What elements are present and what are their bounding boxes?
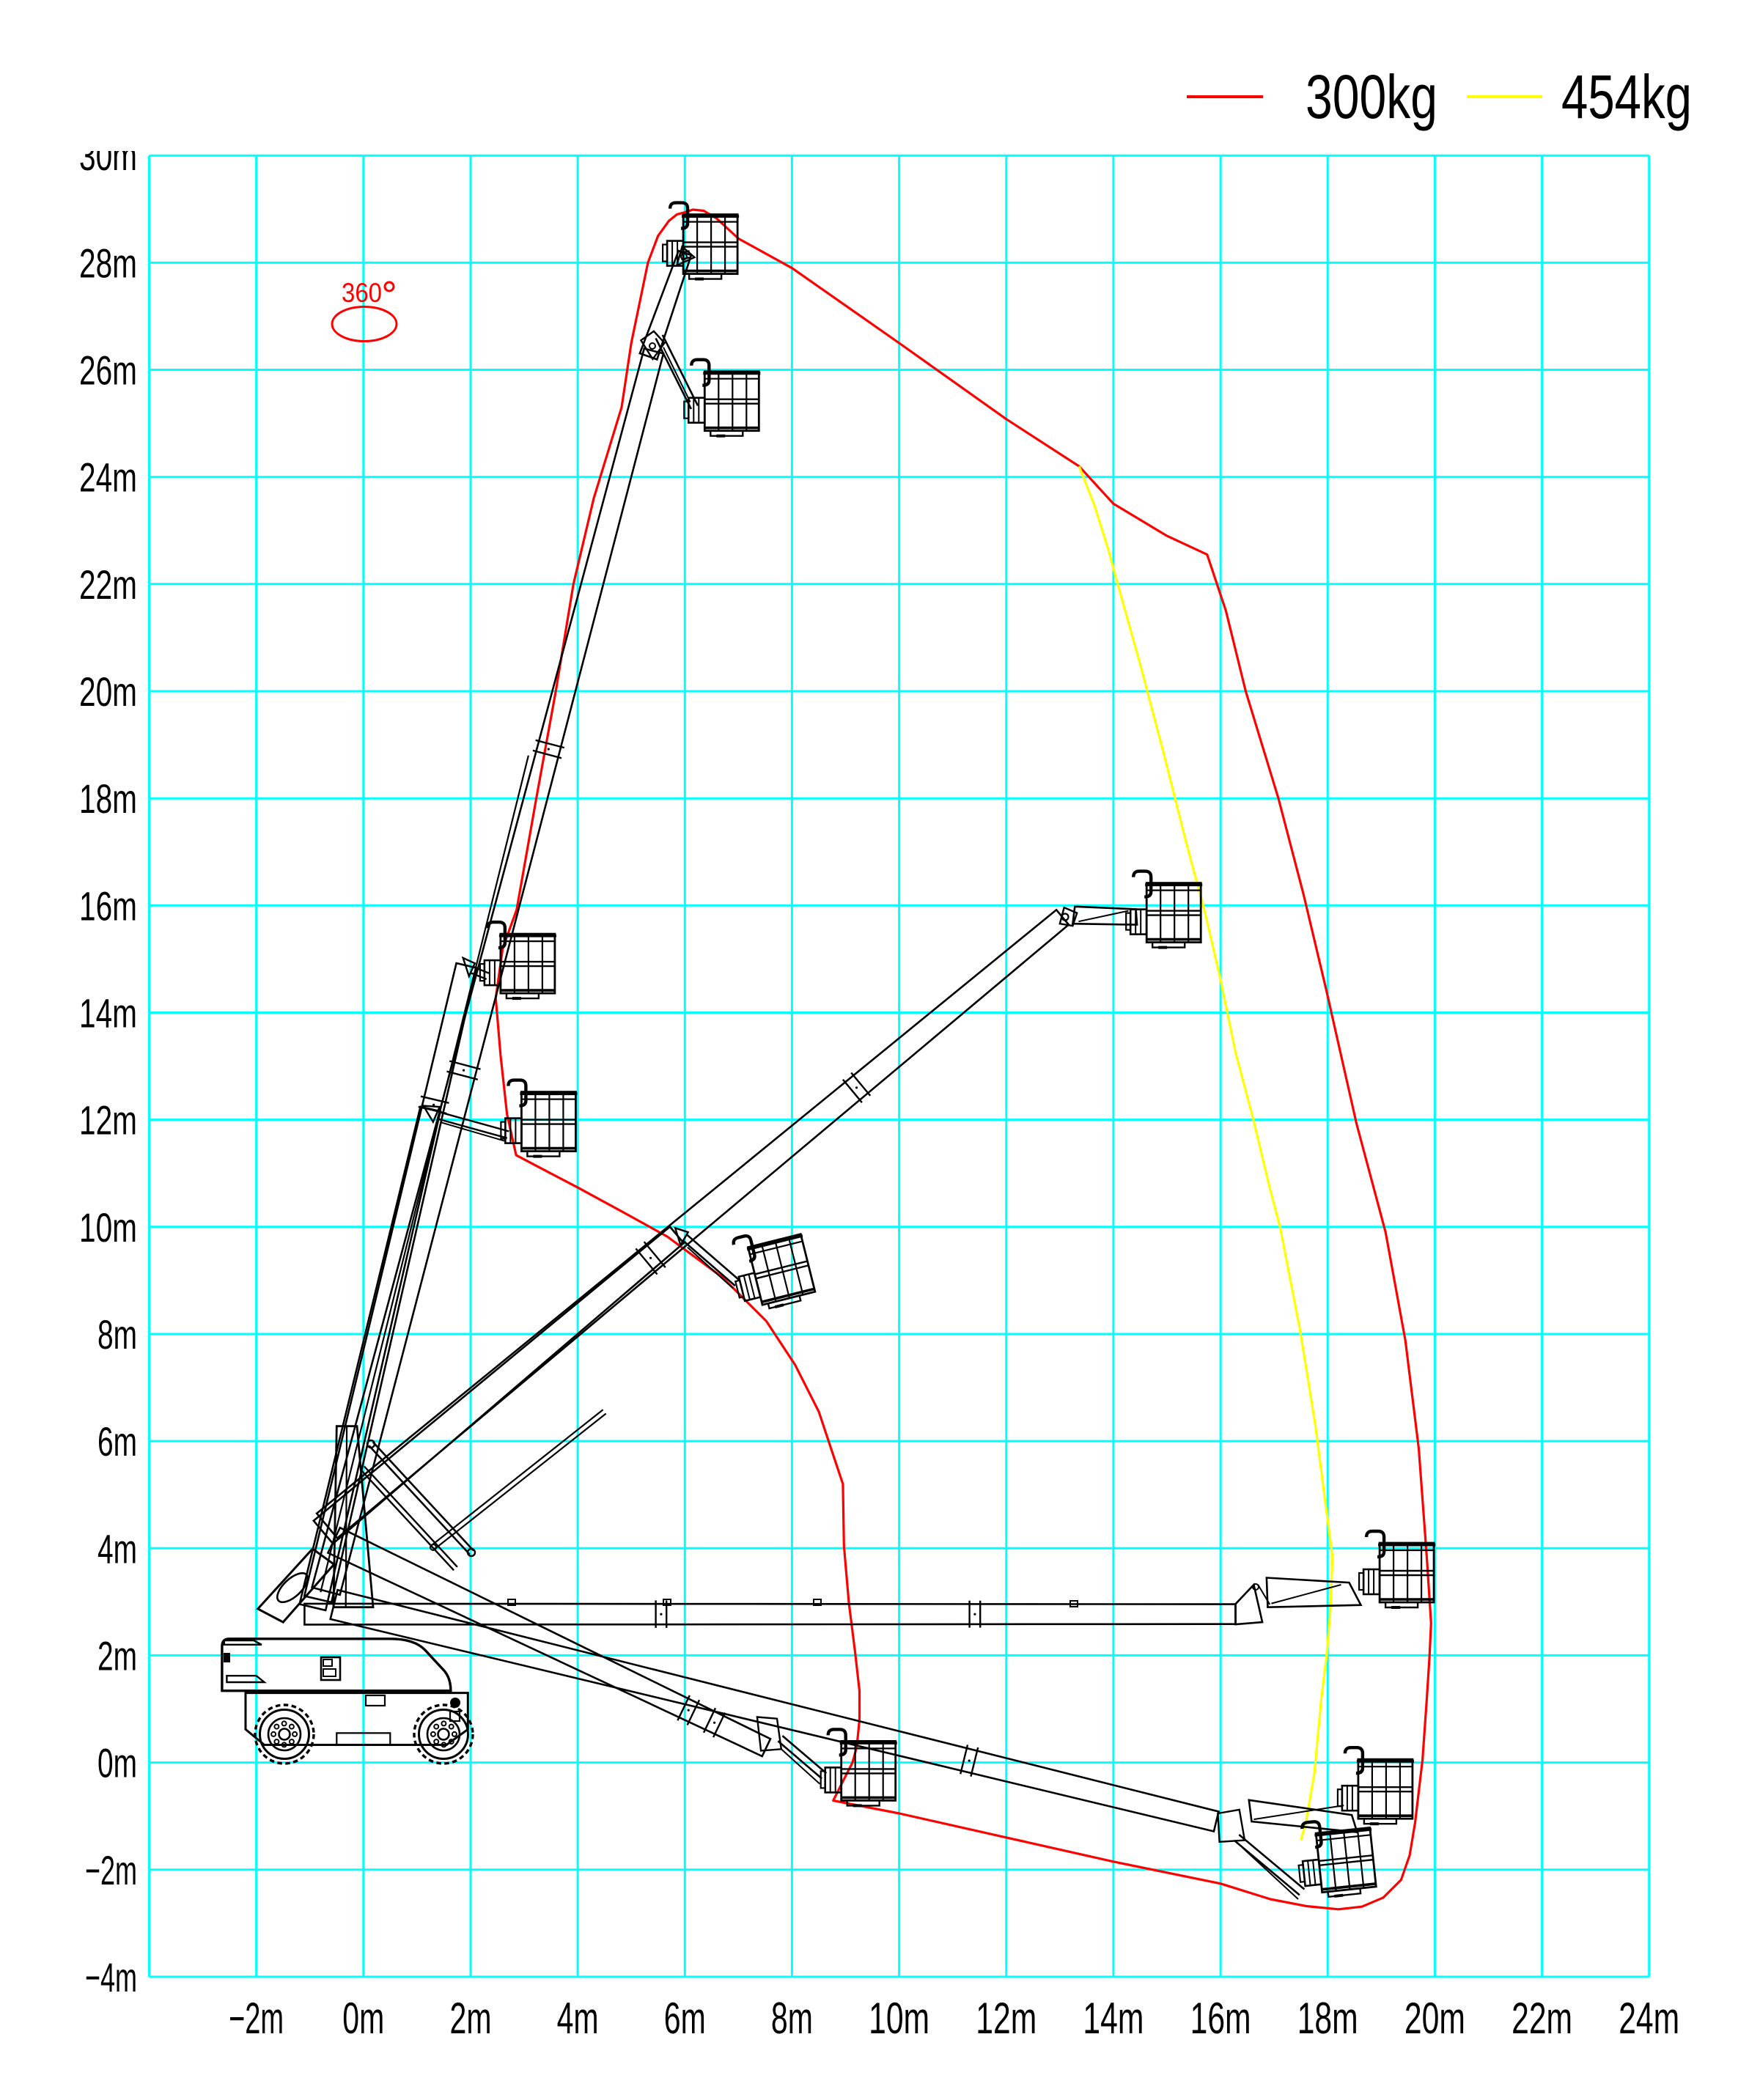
- svg-text:6m: 6m: [97, 1418, 137, 1465]
- svg-text:−2m: −2m: [85, 1847, 137, 1893]
- svg-text:−2m: −2m: [229, 1994, 284, 2043]
- svg-text:14m: 14m: [1083, 1994, 1144, 2043]
- svg-text:454kg: 454kg: [1561, 62, 1692, 131]
- svg-text:12m: 12m: [79, 1097, 137, 1143]
- svg-text:4m: 4m: [557, 1994, 599, 2043]
- svg-text:8m: 8m: [771, 1994, 813, 2043]
- svg-text:16m: 16m: [1190, 1994, 1251, 2043]
- svg-text:18m: 18m: [1297, 1994, 1358, 2043]
- svg-text:28m: 28m: [79, 240, 137, 286]
- svg-text:360: 360: [342, 278, 382, 308]
- svg-text:6m: 6m: [664, 1994, 706, 2043]
- svg-text:10m: 10m: [869, 1994, 929, 2043]
- svg-text:22m: 22m: [1512, 1994, 1572, 2043]
- svg-text:0m: 0m: [342, 1994, 384, 2043]
- svg-text:8m: 8m: [97, 1311, 137, 1357]
- svg-text:2m: 2m: [450, 1994, 492, 2043]
- svg-text:300kg: 300kg: [1306, 62, 1437, 131]
- svg-text:12m: 12m: [976, 1994, 1037, 2043]
- svg-text:22m: 22m: [79, 561, 137, 608]
- svg-text:0m: 0m: [97, 1740, 137, 1786]
- svg-text:20m: 20m: [79, 668, 137, 715]
- svg-text:18m: 18m: [79, 775, 137, 822]
- svg-text:14m: 14m: [79, 990, 137, 1036]
- svg-text:2m: 2m: [97, 1632, 137, 1679]
- svg-text:26m: 26m: [79, 347, 137, 394]
- svg-text:10m: 10m: [79, 1204, 137, 1250]
- svg-text:−4m: −4m: [85, 1954, 137, 2000]
- svg-text:20m: 20m: [1404, 1994, 1465, 2043]
- svg-text:24m: 24m: [1619, 1994, 1679, 2043]
- svg-text:24m: 24m: [79, 454, 137, 501]
- svg-text:4m: 4m: [97, 1525, 137, 1572]
- svg-text:16m: 16m: [79, 883, 137, 929]
